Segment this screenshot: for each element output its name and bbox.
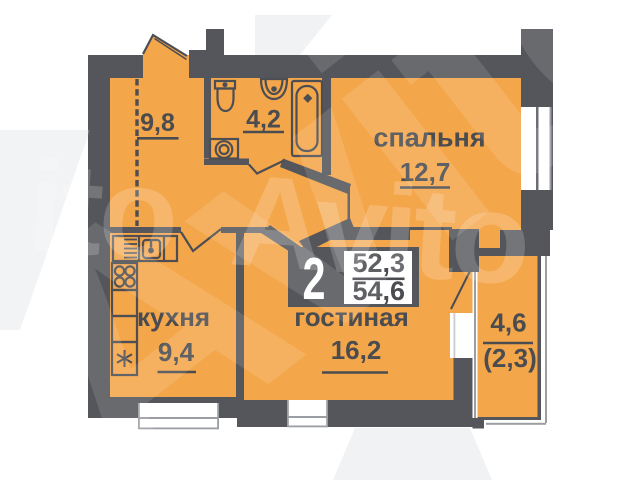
svg-text:(2,3): (2,3) <box>483 343 536 373</box>
svg-text:4,6: 4,6 <box>490 308 526 338</box>
svg-text:Avito: Avito <box>226 146 531 312</box>
svg-text:ito: ito <box>23 132 180 288</box>
